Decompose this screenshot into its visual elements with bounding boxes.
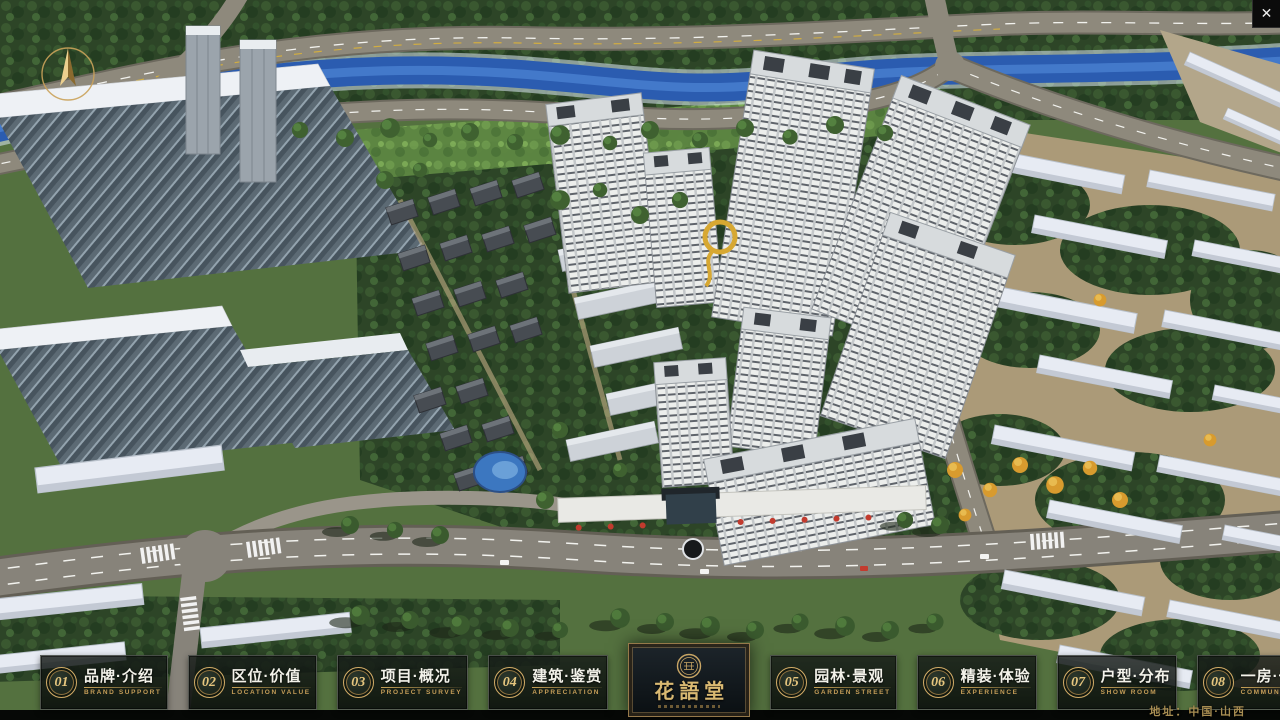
- nav-item-location-value[interactable]: 02 区位·价值 LOCATION VALUE: [188, 655, 317, 710]
- nav-number-badge: 01: [46, 667, 77, 698]
- nav-item-title: 建筑·鉴赏: [532, 668, 602, 685]
- nav-item-subtitle: PROJECT SURVEY: [381, 689, 463, 697]
- logo-title: 花語堂: [649, 681, 729, 703]
- nav-item-title: 品牌·介绍: [84, 668, 162, 685]
- address-text: 地址：中国·山西: [1149, 705, 1246, 719]
- nav-item-garden-landscape[interactable]: 05 园林·景观 GARDEN STREET: [770, 655, 896, 710]
- nav-number-badge: 06: [923, 667, 954, 698]
- logo-subtext: [658, 705, 720, 708]
- seal-icon: [676, 653, 702, 679]
- compass-icon[interactable]: [38, 44, 98, 104]
- gold-divider: [1241, 687, 1280, 688]
- nav-item-title: 区位·价值: [232, 668, 311, 685]
- app-window: ✕ 地址：中国·山西 01 品牌·介绍 BRAND SUPPORT 02 区位·…: [0, 0, 1280, 720]
- nav-number-badge: 03: [343, 667, 374, 698]
- nav-item-floorplan-distribution[interactable]: 07 户型·分布 SHOW ROOM: [1057, 655, 1177, 710]
- nav-item-subtitle: SHOW ROOM: [1101, 689, 1171, 697]
- gold-divider: [381, 687, 463, 688]
- nav-item-subtitle: APPRECIATION: [532, 689, 602, 697]
- nav-number-badge: 07: [1063, 667, 1094, 698]
- gold-divider: [232, 687, 311, 688]
- nav-item-room-view[interactable]: 08 一房·一景 COMMUNITY: [1197, 655, 1280, 710]
- nav-item-finishing-experience[interactable]: 06 精装·体验 EXPERIENCE: [917, 655, 1037, 710]
- gold-divider: [961, 687, 1031, 688]
- gold-divider: [532, 687, 602, 688]
- close-button[interactable]: ✕: [1252, 0, 1280, 28]
- nav-item-title: 一房·一景: [1241, 668, 1280, 685]
- nav-number-badge: 08: [1203, 667, 1234, 698]
- nav-item-subtitle: COMMUNITY: [1241, 689, 1280, 697]
- gold-divider: [84, 687, 162, 688]
- logo-panel[interactable]: 花語堂: [628, 643, 750, 717]
- nav-item-subtitle: EXPERIENCE: [961, 689, 1031, 697]
- nav-item-project-survey[interactable]: 03 项目·概况 PROJECT SURVEY: [337, 655, 469, 710]
- nav-item-subtitle: GARDEN STREET: [814, 689, 890, 697]
- nav-item-subtitle: BRAND SUPPORT: [84, 689, 162, 697]
- nav-number-badge: 02: [194, 667, 225, 698]
- nav-item-title: 园林·景观: [814, 668, 890, 685]
- bottom-nav: 01 品牌·介绍 BRAND SUPPORT 02 区位·价值 LOCATION…: [0, 643, 1280, 720]
- nav-item-title: 项目·概况: [381, 668, 463, 685]
- masterplan-render: [0, 0, 1280, 720]
- nav-number-badge: 04: [494, 667, 525, 698]
- gold-divider: [814, 687, 890, 688]
- nav-item-title: 户型·分布: [1101, 668, 1171, 685]
- nav-item-architecture[interactable]: 04 建筑·鉴赏 APPRECIATION: [488, 655, 608, 710]
- gold-divider: [1101, 687, 1171, 688]
- nav-item-brand-intro[interactable]: 01 品牌·介绍 BRAND SUPPORT: [40, 655, 168, 710]
- nav-item-subtitle: LOCATION VALUE: [232, 689, 311, 697]
- nav-item-title: 精装·体验: [961, 668, 1031, 685]
- nav-number-badge: 05: [776, 667, 807, 698]
